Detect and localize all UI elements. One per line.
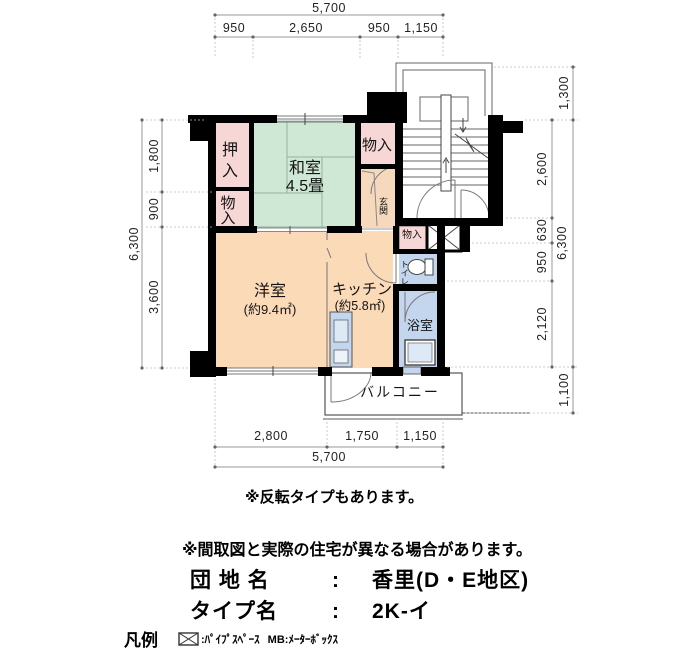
dim-label-right-inner-2: 950 xyxy=(535,232,549,292)
type-name-row: タイプ名 : 2K-イ xyxy=(190,595,431,625)
dim-label-bottom-2: 1,150 xyxy=(390,429,450,443)
dim-label-right-inner-0: 2,600 xyxy=(535,139,549,199)
room-label-monoire-small: 物入 xyxy=(397,229,427,243)
dim-label-bottom-0: 2,800 xyxy=(241,429,301,443)
note-disclaimer: ※間取図と実際の住宅が異なる場合があります。 xyxy=(182,536,532,560)
type-name-label: タイプ名 xyxy=(190,595,332,625)
room-label-oshiire: 押入 xyxy=(215,131,239,193)
dim-label-top-0: 950 xyxy=(204,21,264,35)
dim-label-top-total: 5,700 xyxy=(299,1,359,15)
kitchen-sink-counter xyxy=(330,312,352,367)
floor-plan-drawing xyxy=(0,0,700,480)
landing-door-arcs xyxy=(417,180,489,218)
dim-label-left-total: 6,300 xyxy=(127,214,141,274)
legend-meter-box-text: MB:ﾒｰﾀｰﾎﾞｯｸｽ xyxy=(268,631,338,647)
dim-label-bottom-total: 5,700 xyxy=(299,450,359,464)
dim-label-top-3: 1,150 xyxy=(391,21,451,35)
floor-plan-page: 5,700 950 2,650 950 1,150 6,300 1,800 90… xyxy=(0,0,700,650)
room-label-washitsu-size: 4.5畳 xyxy=(263,178,347,196)
dim-label-left-2: 3,600 xyxy=(147,267,161,327)
dim-label-left-0: 1,800 xyxy=(147,126,161,186)
dim-label-right-outer-0: 1,300 xyxy=(557,63,571,123)
room-label-genkan: 玄関 xyxy=(375,188,390,224)
dim-label-right-outer-1: 6,300 xyxy=(555,213,569,273)
room-label-washitsu: 和室 xyxy=(265,160,345,178)
room-label-bath: 浴室 xyxy=(400,317,440,333)
bathtub-fixture xyxy=(405,340,435,365)
estate-name-label: 団 地 名 xyxy=(190,564,332,594)
estate-name-separator: : xyxy=(332,569,372,593)
type-name-value: 2K-イ xyxy=(372,595,431,625)
room-label-toilet: トイレ xyxy=(399,253,410,293)
estate-name-row: 団 地 名 : 香里(D・E地区) xyxy=(190,564,529,594)
room-label-monoire-top: 物入 xyxy=(355,137,399,153)
legend-title: 凡例 xyxy=(124,626,158,650)
pipe-space-icon xyxy=(178,632,199,646)
dim-label-right-outer-2: 1,100 xyxy=(557,360,571,420)
room-label-balcony: バルコニー xyxy=(352,383,448,400)
type-name-separator: : xyxy=(332,600,372,624)
room-label-kitchen-size: (約5.8㎡) xyxy=(320,299,400,314)
dim-label-left-1: 900 xyxy=(147,179,161,239)
legend-row: 凡例 :ﾊﾟｲﾌﾟｽﾍﾟｰｽ MB:ﾒｰﾀｰﾎﾞｯｸｽ xyxy=(124,626,346,650)
room-label-monoire-left: 物入 xyxy=(215,191,239,228)
floor-plan: 5,700 950 2,650 950 1,150 6,300 1,800 90… xyxy=(0,0,700,480)
staircase xyxy=(396,63,492,191)
dim-label-top-1: 2,650 xyxy=(276,21,336,35)
toilet-fixture xyxy=(408,259,433,275)
room-label-kitchen: キッチン xyxy=(322,281,402,298)
dim-label-right-inner-3: 2,120 xyxy=(535,294,549,354)
dim-label-bottom-1: 1,750 xyxy=(332,429,392,443)
estate-name-value: 香里(D・E地区) xyxy=(372,564,529,594)
room-label-yoshitsu: 洋室 xyxy=(230,283,310,301)
room-label-yoshitsu-size: (約9.4㎡) xyxy=(206,301,334,317)
legend-pipe-space-text: :ﾊﾟｲﾌﾟｽﾍﾟｰｽ xyxy=(201,631,260,647)
note-reversed-type: ※反転タイプもあります。 xyxy=(245,486,423,507)
